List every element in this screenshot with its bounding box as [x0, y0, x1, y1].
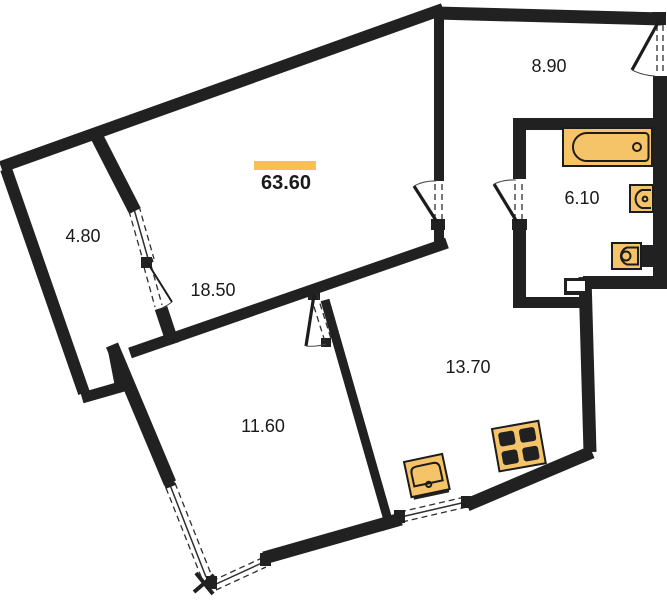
wall-bedroom-kitchen-divider	[325, 300, 388, 520]
wall-living-right-upper	[434, 16, 444, 181]
wall-top-left	[1, 9, 443, 167]
door-loggia	[141, 257, 172, 308]
entrance-door	[632, 21, 663, 76]
fixtures	[404, 128, 653, 500]
room-area-label-bedroom: 11.60	[241, 416, 285, 436]
wall-bathroom-left-lower	[513, 221, 526, 308]
duct-shaft-inner	[567, 281, 585, 291]
walls	[1, 9, 667, 558]
wall-loggia-divider-upper	[94, 131, 135, 211]
wall-bottom-middle	[264, 519, 401, 558]
wall-bathroom-bottom	[583, 276, 657, 289]
stove-icon	[492, 421, 546, 472]
bathroom-sink-icon	[630, 185, 653, 212]
total-area-highlight	[254, 161, 316, 170]
room-area-label-living-room: 18.50	[190, 280, 235, 300]
kitchen-sink-icon	[404, 454, 450, 500]
wall-corridor-bottom	[513, 297, 587, 308]
total-area-label: 63.60	[261, 172, 311, 194]
floor-plan-page: 63.60 18.50 4.80 8.90 6.10 11.60 13.70	[0, 0, 667, 600]
room-area-label-loggia: 4.80	[65, 226, 100, 246]
floor-plan: 63.60 18.50 4.80 8.90 6.10 11.60 13.70	[0, 0, 667, 600]
window-bedroom-left	[165, 483, 211, 579]
windows	[129, 206, 471, 594]
window-loggia	[129, 206, 154, 264]
room-area-label-hallway: 8.90	[531, 56, 566, 76]
window-kitchen	[394, 496, 471, 523]
wall-living-bottom	[130, 243, 447, 353]
room-area-label-kitchen: 13.70	[445, 357, 490, 377]
room-area-label-bathroom: 6.10	[564, 188, 599, 208]
door-bathroom	[494, 180, 522, 222]
window-bedroom-bottom	[206, 553, 271, 590]
door-post-divider-top	[321, 338, 331, 347]
wall-right	[653, 76, 667, 289]
wall-loggia-step	[113, 348, 121, 389]
door-hinge-post-bathroom	[512, 219, 527, 230]
door-living-hallway	[414, 181, 442, 222]
bathtub-icon	[563, 128, 652, 166]
wall-loggia-left	[6, 169, 84, 393]
toilet-icon	[612, 243, 653, 269]
wall-top-right	[436, 13, 662, 19]
